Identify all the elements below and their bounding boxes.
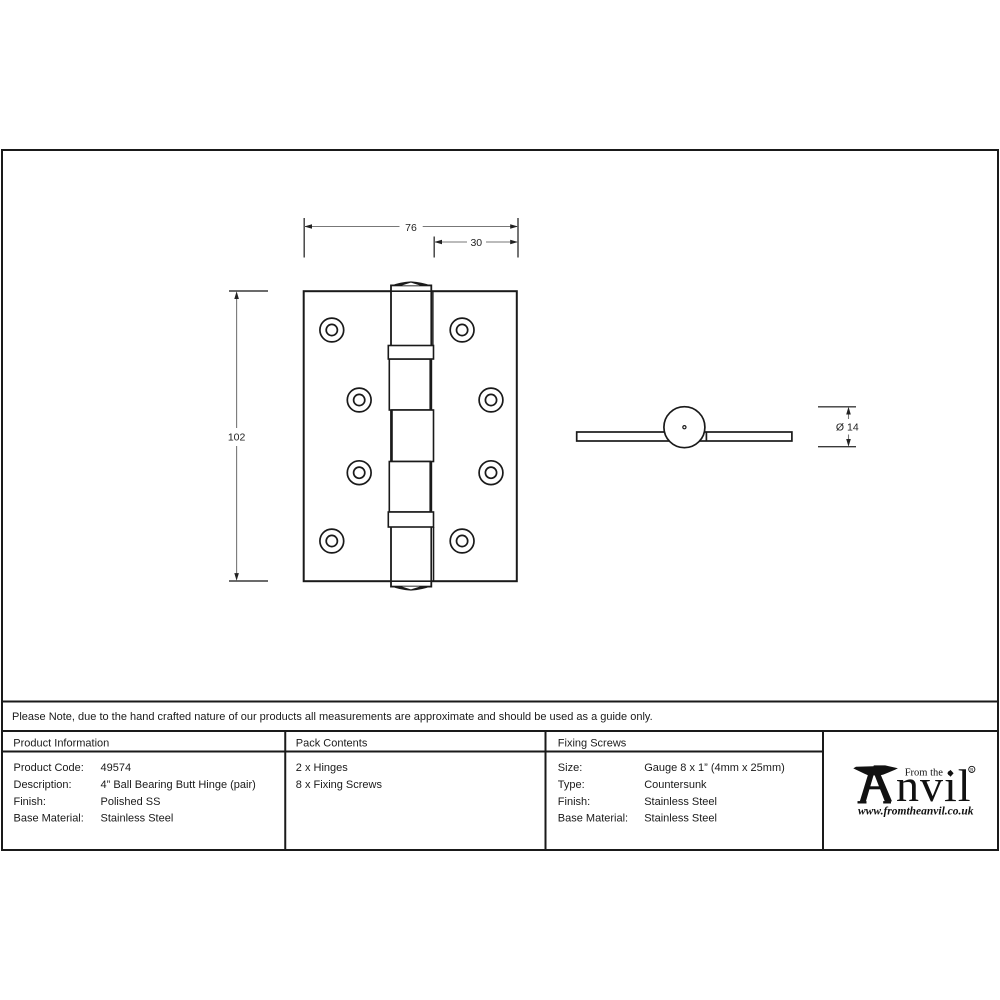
svg-text:Countersunk: Countersunk bbox=[644, 779, 707, 791]
svg-text:Finish:: Finish: bbox=[14, 796, 46, 808]
svg-text:Description:: Description: bbox=[14, 779, 72, 791]
svg-text:Base Material:: Base Material: bbox=[14, 812, 84, 824]
svg-text:Product Information: Product Information bbox=[13, 738, 109, 750]
svg-text:4” Ball Bearing Butt Hinge (pa: 4” Ball Bearing Butt Hinge (pair) bbox=[101, 779, 256, 791]
svg-text:30: 30 bbox=[470, 237, 482, 249]
svg-text:Stainless Steel: Stainless Steel bbox=[644, 812, 717, 824]
svg-text:Stainless Steel: Stainless Steel bbox=[644, 796, 717, 808]
svg-text:2 x Hinges: 2 x Hinges bbox=[296, 762, 348, 774]
svg-text:Stainless Steel: Stainless Steel bbox=[101, 812, 174, 824]
svg-text:Gauge 8 x 1” (4mm x 25mm): Gauge 8 x 1” (4mm x 25mm) bbox=[644, 762, 785, 774]
svg-text:102: 102 bbox=[228, 431, 246, 443]
svg-text:Pack Contents: Pack Contents bbox=[296, 738, 368, 750]
svg-text:Product Code:: Product Code: bbox=[14, 762, 84, 774]
svg-text:Type:: Type: bbox=[558, 779, 585, 791]
svg-text:Polished SS: Polished SS bbox=[101, 796, 161, 808]
svg-text:Finish:: Finish: bbox=[558, 796, 590, 808]
svg-text:www.fromtheanvil.co.uk: www.fromtheanvil.co.uk bbox=[858, 805, 974, 817]
svg-text:49574: 49574 bbox=[101, 762, 132, 774]
svg-text:8 x Fixing Screws: 8 x Fixing Screws bbox=[296, 779, 383, 791]
svg-text:76: 76 bbox=[405, 222, 417, 234]
svg-text:Size:: Size: bbox=[558, 762, 582, 774]
svg-text:Ø 14: Ø 14 bbox=[836, 422, 859, 434]
svg-text:Fixing Screws: Fixing Screws bbox=[558, 738, 627, 750]
svg-text:Please Note, due to the hand c: Please Note, due to the hand crafted nat… bbox=[12, 711, 653, 723]
svg-text:From the: From the bbox=[905, 768, 944, 779]
svg-text:Base Material:: Base Material: bbox=[558, 812, 628, 824]
